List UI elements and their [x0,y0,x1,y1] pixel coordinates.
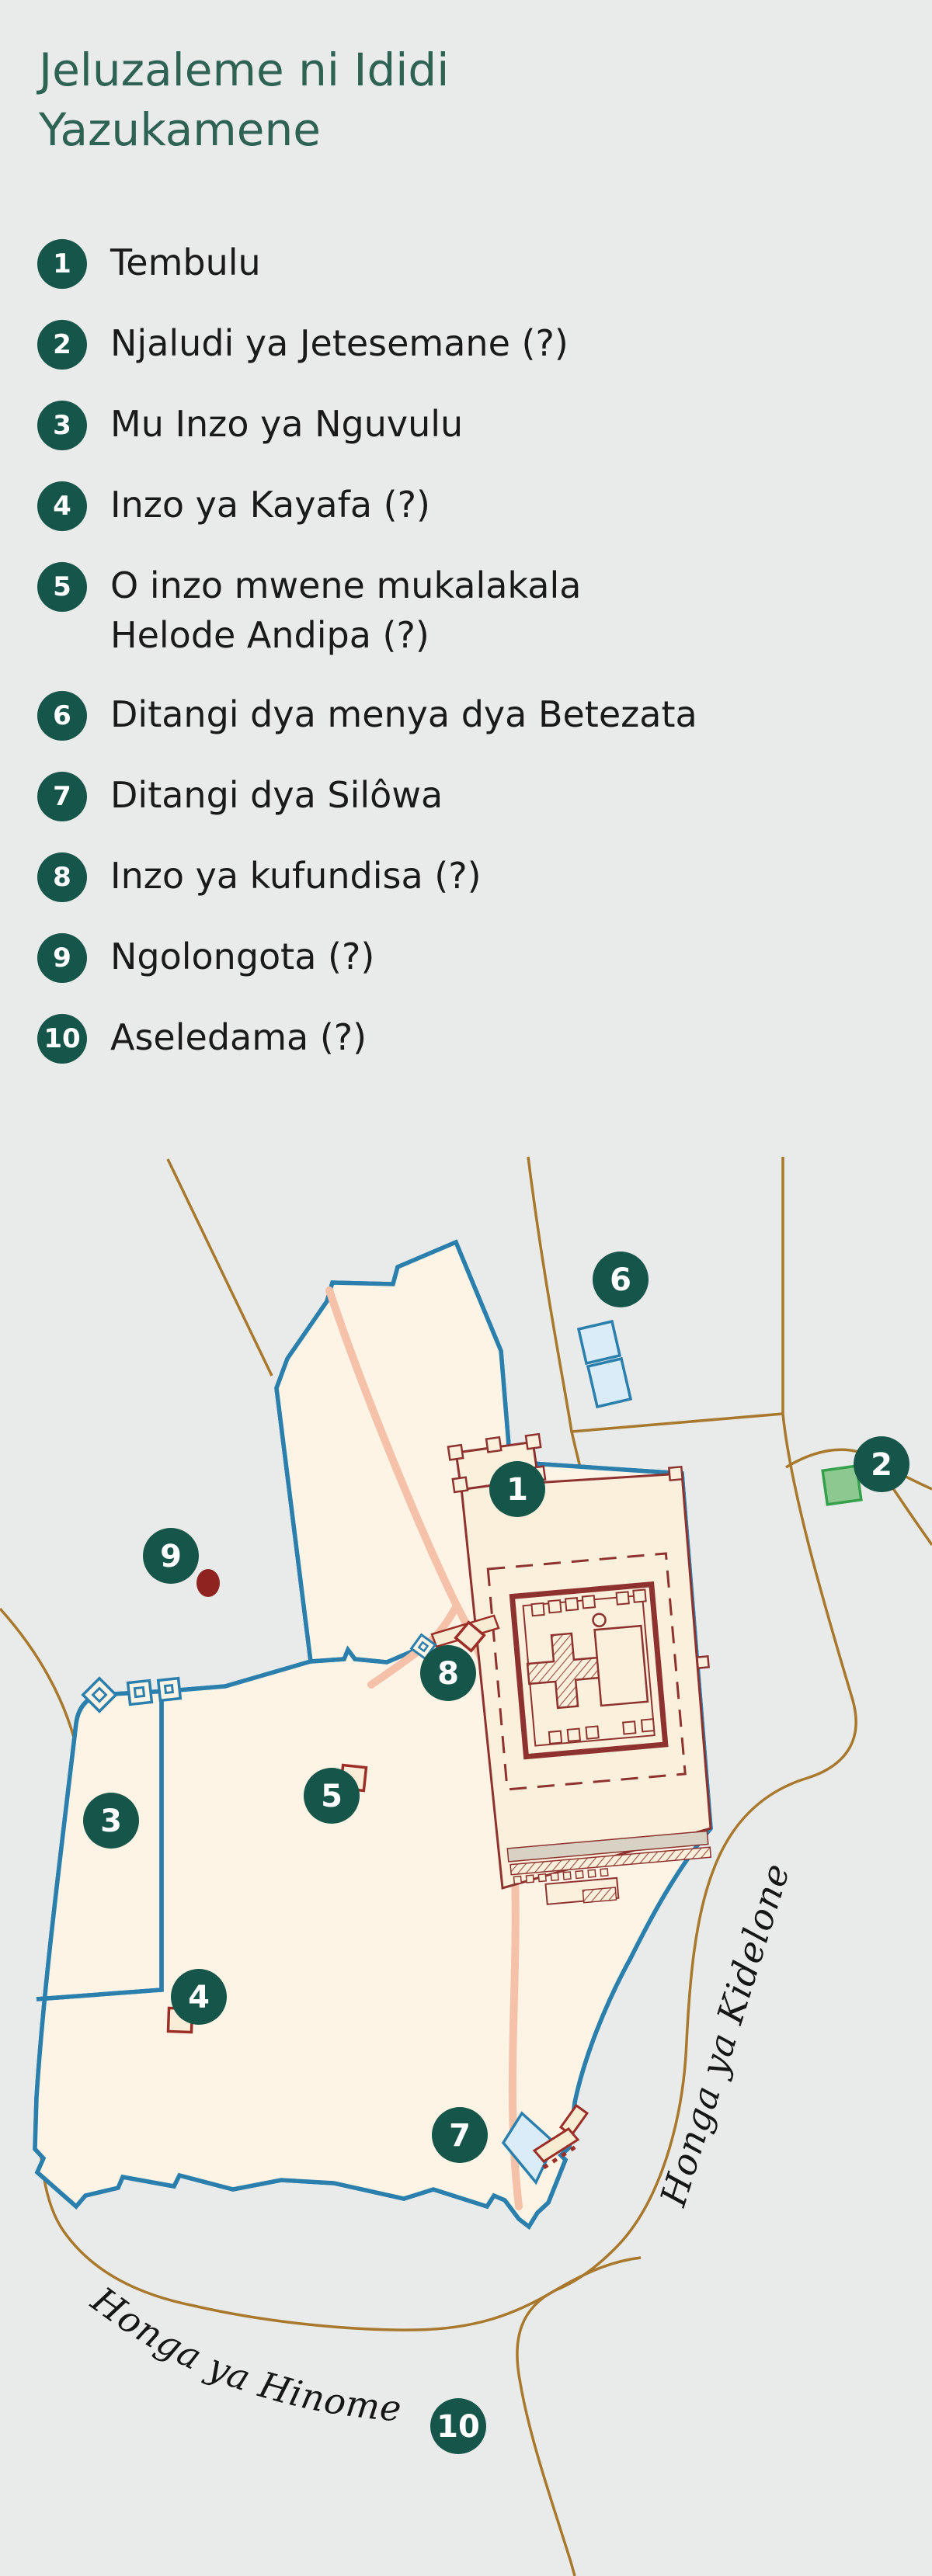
legend-item: 7 Ditangi dya Silôwa [37,770,876,821]
page-title: Jeluzaleme ni Ididi Yazukamene [39,40,854,160]
legend-item-label: Inzo ya kufundisa (?) [110,851,482,901]
map-marker-7: 7 [432,2107,488,2163]
legend-number-badge: 9 [37,933,87,983]
legend-item: 9 Ngolongota (?) [37,932,876,983]
legend-item: 1 Tembulu [37,238,876,289]
legend-list: 1 Tembulu 2 Njaludi ya Jetesemane (?) 3 … [37,238,876,1093]
map-marker-number: 3 [100,1804,122,1839]
map-marker-number: 5 [321,1779,343,1814]
golgotha-dot [196,1569,220,1597]
legend-number-badge: 4 [37,481,87,531]
road-north-crosslink [572,1414,783,1432]
map-marker-10: 10 [430,2398,486,2454]
map-marker-6: 6 [593,1252,649,1307]
legend-item: 8 Inzo ya kufundisa (?) [37,851,876,902]
map-marker-1: 1 [489,1461,545,1517]
map-svg: Honga ya Kidelone Honga ya Hinome 123456… [0,1126,932,2576]
legend-item: 10 Aseledama (?) [37,1012,876,1064]
platform-corner-tower [669,1467,682,1480]
gate-tower-square-2 [158,1679,181,1701]
legend-item-label: Aseledama (?) [110,1012,367,1062]
map-marker-number: 9 [160,1539,182,1574]
pool-betezata [579,1321,631,1407]
map-marker-number: 2 [871,1447,892,1483]
map-marker-8: 8 [420,1645,476,1701]
gate-tower-square-1 [128,1681,152,1705]
legend-item-label: Ngolongota (?) [110,932,374,981]
road-northwest [168,1159,272,1376]
legend-item: 5 O inzo mwene mukalakala Helode Andipa … [37,561,876,660]
legend-number-badge: 6 [37,691,87,741]
page-title-line2: Yazukamene [39,100,854,160]
road-north-central [528,1157,582,1474]
map-marker-5: 5 [304,1768,360,1824]
map: Honga ya Kidelone Honga ya Hinome 123456… [0,1126,932,2576]
map-marker-number: 10 [436,2409,480,2445]
map-marker-number: 7 [449,2118,471,2154]
legend-number-badge: 7 [37,772,87,821]
legend-item-label: Tembulu [110,238,261,287]
legend-item: 2 Njaludi ya Jetesemane (?) [37,318,876,370]
legend-item-label: Ditangi dya Silôwa [110,770,443,820]
road-label-hinnom: Honga ya Hinome [83,2278,403,2429]
legend-number-badge: 8 [37,852,87,902]
map-marker-number: 6 [610,1262,631,1298]
legend-item-label: O inzo mwene mukalakala Helode Andipa (?… [110,561,708,660]
map-marker-4: 4 [171,1969,227,2025]
page-title-line1: Jeluzaleme ni Ididi [39,40,854,100]
map-marker-9: 9 [143,1528,199,1584]
legend-number-badge: 5 [37,562,87,612]
legend-item: 6 Ditangi dya menya dya Betezata [37,689,876,741]
platform-east-tower [697,1656,708,1668]
legend-item: 3 Mu Inzo ya Nguvulu [37,399,876,450]
legend-number-badge: 3 [37,401,87,450]
legend-item: 4 Inzo ya Kayafa (?) [37,480,876,531]
map-marker-number: 4 [188,1980,210,2015]
map-marker-2: 2 [854,1436,909,1492]
legend-item-label: Inzo ya Kayafa (?) [110,480,430,529]
map-marker-number: 1 [506,1472,528,1508]
legend-number-badge: 10 [37,1014,87,1064]
road-label-kidron: Honga ya Kidelone [652,1858,798,2211]
map-marker-3: 3 [83,1793,139,1849]
legend-item-label: Mu Inzo ya Nguvulu [110,399,463,449]
legend-item-label: Njaludi ya Jetesemane (?) [110,318,569,368]
inner-east-room [595,1626,648,1706]
legend-number-badge: 1 [37,239,87,289]
legend-number-badge: 2 [37,320,87,370]
map-marker-number: 8 [437,1656,459,1692]
legend-item-label: Ditangi dya menya dya Betezata [110,689,697,739]
